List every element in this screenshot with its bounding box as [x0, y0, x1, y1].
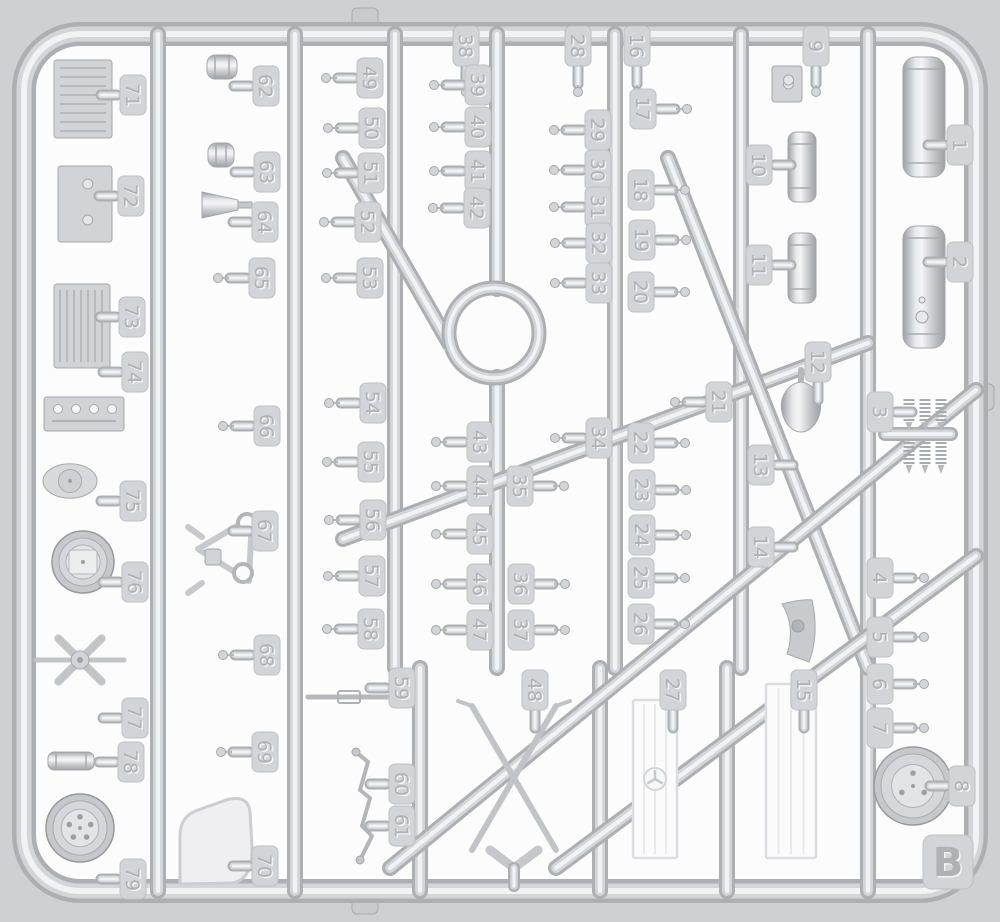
- carburetor-9: [772, 66, 802, 102]
- part-number-79: 79: [121, 867, 143, 891]
- molded-part: [217, 748, 226, 757]
- molded-part: [561, 626, 570, 635]
- part-number-74: 74: [123, 360, 145, 384]
- part-number-9: 9: [804, 40, 826, 52]
- part-number-38: 38: [454, 34, 476, 58]
- part-number-67: 67: [253, 519, 275, 543]
- sprue-svg: 1122334455667788991010111112121313141415…: [0, 0, 1000, 922]
- molded-part: [323, 169, 332, 178]
- part-number-70: 70: [253, 854, 275, 878]
- molded-part: [551, 239, 560, 248]
- oil-pan-73: [54, 284, 110, 368]
- part-number-45: 45: [468, 522, 490, 546]
- part-number-43: 43: [468, 430, 490, 454]
- fuel-tank-2: [903, 226, 945, 348]
- part-number-69: 69: [253, 740, 275, 764]
- part-number-55: 55: [359, 450, 381, 474]
- part-number-15: 15: [792, 678, 814, 702]
- sprue-diagram: 1122334455667788991010111112121313141415…: [0, 0, 1000, 922]
- part-number-46: 46: [468, 572, 490, 596]
- part-number-57: 57: [360, 564, 382, 588]
- part-number-14: 14: [749, 535, 771, 559]
- molded-part: [320, 218, 329, 227]
- molded-part: [430, 123, 439, 132]
- part-number-27: 27: [661, 678, 683, 702]
- part-number-50: 50: [360, 116, 382, 140]
- part-number-28: 28: [566, 34, 588, 58]
- part-number-18: 18: [629, 178, 651, 202]
- part-number-48: 48: [523, 678, 545, 702]
- molded-part: [812, 88, 821, 97]
- gearbox-72: [58, 166, 112, 242]
- molded-part: [551, 434, 560, 443]
- molded-part: [430, 81, 439, 90]
- molded-part: [550, 203, 559, 212]
- part-number-6: 6: [868, 678, 890, 690]
- part-number-47: 47: [468, 618, 490, 642]
- molded-part: [550, 166, 559, 175]
- part-number-21: 21: [707, 390, 729, 414]
- cylinder-head-74: [44, 397, 124, 431]
- part-number-76: 76: [123, 570, 145, 594]
- sprue-letter: B: [933, 840, 964, 886]
- molded-part: [682, 236, 691, 245]
- molded-part: [551, 279, 560, 288]
- molded-part: [432, 580, 441, 589]
- fuel-tank-1: [903, 57, 945, 177]
- part-number-26: 26: [629, 612, 651, 636]
- road-wheel-79: [46, 794, 114, 862]
- part-number-62: 62: [254, 74, 276, 98]
- part-number-19: 19: [630, 228, 652, 252]
- part-number-34: 34: [587, 426, 609, 450]
- part-number-12: 12: [806, 350, 828, 374]
- molded-part: [322, 274, 331, 283]
- part-number-1: 1: [948, 139, 970, 151]
- part-number-7: 7: [868, 722, 890, 734]
- part-number-53: 53: [358, 266, 380, 290]
- part-number-72: 72: [119, 184, 141, 208]
- part-number-56: 56: [361, 508, 383, 532]
- part-number-71: 71: [121, 83, 143, 107]
- part-number-29: 29: [586, 118, 608, 142]
- molded-part: [323, 458, 332, 467]
- molded-part: [681, 620, 690, 629]
- molded-part: [920, 633, 929, 642]
- molded-part: [920, 574, 929, 583]
- part-number-54: 54: [361, 391, 383, 415]
- part-number-51: 51: [359, 161, 381, 185]
- part-number-40: 40: [466, 115, 488, 139]
- part-number-33: 33: [587, 271, 609, 295]
- part-number-30: 30: [586, 158, 608, 182]
- part-number-11: 11: [747, 253, 769, 277]
- part-number-4: 4: [868, 572, 890, 584]
- molded-part: [681, 574, 690, 583]
- molded-part: [681, 439, 690, 448]
- molded-part: [325, 516, 334, 525]
- part-number-13: 13: [749, 453, 771, 477]
- part-number-77: 77: [123, 706, 145, 730]
- part-number-20: 20: [629, 280, 651, 304]
- molded-part: [683, 105, 692, 114]
- molded-part: [682, 531, 691, 540]
- part-number-59: 59: [390, 676, 412, 700]
- piston-62: [207, 55, 237, 79]
- part-number-23: 23: [630, 478, 652, 502]
- molded-part: [323, 625, 332, 634]
- part-number-16: 16: [625, 34, 647, 58]
- part-number-17: 17: [631, 97, 653, 121]
- part-number-3: 3: [868, 406, 890, 418]
- molded-part: [432, 438, 441, 447]
- part-number-60: 60: [390, 772, 412, 796]
- molded-part: [574, 88, 583, 97]
- part-number-5: 5: [868, 631, 890, 643]
- part-number-68: 68: [255, 643, 277, 667]
- molded-part: [214, 274, 223, 283]
- molded-part: [920, 680, 929, 689]
- part-number-25: 25: [629, 566, 651, 590]
- part-number-65: 65: [250, 266, 272, 290]
- part-number-41: 41: [466, 159, 488, 183]
- part-number-2: 2: [948, 256, 970, 268]
- part-number-37: 37: [509, 618, 531, 642]
- part-number-39: 39: [466, 73, 488, 97]
- sprue-letter-tag: BB: [923, 835, 973, 889]
- molded-part: [920, 724, 929, 733]
- molded-part: [322, 74, 331, 83]
- molded-part: [432, 530, 441, 539]
- part-number-42: 42: [465, 196, 487, 220]
- part-number-35: 35: [508, 474, 530, 498]
- part-number-63: 63: [255, 160, 277, 184]
- part-number-22: 22: [629, 431, 651, 455]
- part-number-36: 36: [509, 572, 531, 596]
- part-number-66: 66: [255, 414, 277, 438]
- molded-part: [681, 186, 690, 195]
- molded-part: [430, 167, 439, 176]
- molded-part: [219, 422, 228, 431]
- molded-part: [550, 126, 559, 135]
- round-cover-75: [43, 464, 97, 498]
- molded-part: [560, 482, 569, 491]
- molded-part: [219, 651, 228, 660]
- part-number-52: 52: [356, 210, 378, 234]
- part-number-8: 8: [950, 780, 972, 792]
- molded-part: [432, 482, 441, 491]
- part-number-32: 32: [587, 231, 609, 255]
- piston-63: [208, 143, 234, 167]
- molded-part: [432, 626, 441, 635]
- part-number-61: 61: [390, 814, 412, 838]
- molded-part: [324, 572, 333, 581]
- part-number-75: 75: [121, 489, 143, 513]
- molded-part: [325, 399, 334, 408]
- part-number-10: 10: [747, 153, 769, 177]
- part-number-24: 24: [630, 523, 652, 547]
- part-number-58: 58: [359, 617, 381, 641]
- molded-part: [429, 204, 438, 213]
- part-number-44: 44: [468, 474, 490, 498]
- part-number-78: 78: [119, 750, 141, 774]
- part-number-73: 73: [120, 305, 142, 329]
- part-number-64: 64: [253, 210, 275, 234]
- molded-part: [682, 486, 691, 495]
- molded-part: [681, 288, 690, 297]
- part-number-49: 49: [358, 66, 380, 90]
- part-number-31: 31: [586, 195, 608, 219]
- filter-78: [48, 752, 94, 770]
- molded-part: [324, 124, 333, 133]
- molded-part: [561, 580, 570, 589]
- molded-part: [671, 398, 680, 407]
